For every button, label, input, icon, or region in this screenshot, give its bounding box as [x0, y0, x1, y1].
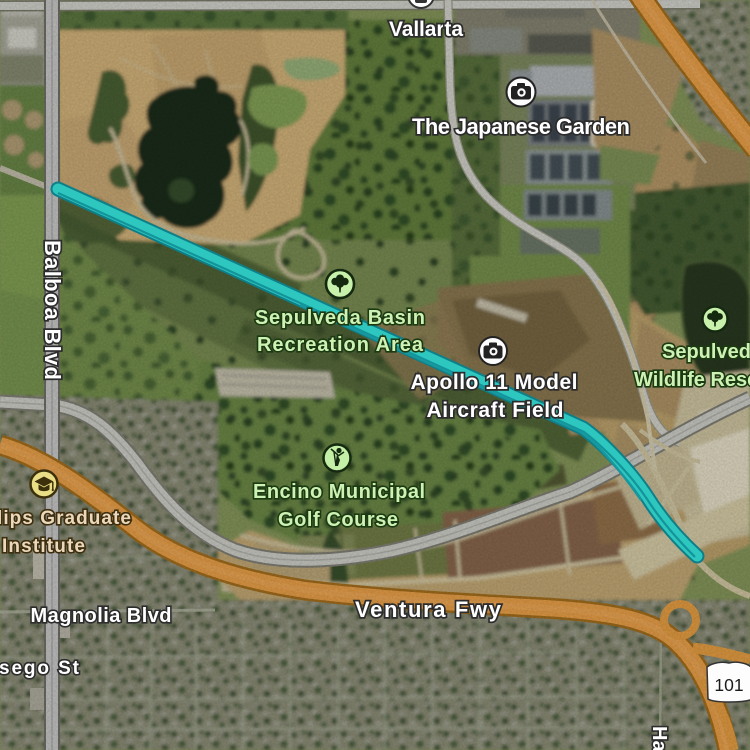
svg-text:The Japanese Garden: The Japanese Garden	[412, 114, 630, 139]
svg-text:Golf Course: Golf Course	[278, 509, 398, 531]
svg-text:sego St: sego St	[0, 658, 80, 679]
svg-text:Encino Municipal: Encino Municipal	[253, 481, 425, 503]
svg-text:Recreation Area: Recreation Area	[257, 334, 424, 356]
svg-text:Sepulveda Basin: Sepulveda Basin	[255, 307, 425, 329]
svg-text:Sepulveda: Sepulveda	[662, 341, 750, 363]
svg-text:Hayvenhurst: Hayvenhurst	[648, 726, 670, 750]
svg-text:Aircraft Field: Aircraft Field	[427, 399, 564, 422]
svg-text:lips Graduate: lips Graduate	[0, 508, 131, 529]
svg-text:101: 101	[714, 675, 743, 695]
svg-text:Balboa Blvd: Balboa Blvd	[40, 240, 65, 380]
svg-text:Magnolia Blvd: Magnolia Blvd	[31, 605, 172, 627]
svg-text:Vallarta: Vallarta	[389, 18, 463, 41]
svg-text:Apollo 11 Model: Apollo 11 Model	[411, 371, 578, 394]
svg-text:Wildlife Reserve: Wildlife Reserve	[634, 369, 750, 391]
svg-text:Institute: Institute	[2, 536, 85, 557]
svg-text:Ventura Fwy: Ventura Fwy	[355, 597, 502, 622]
